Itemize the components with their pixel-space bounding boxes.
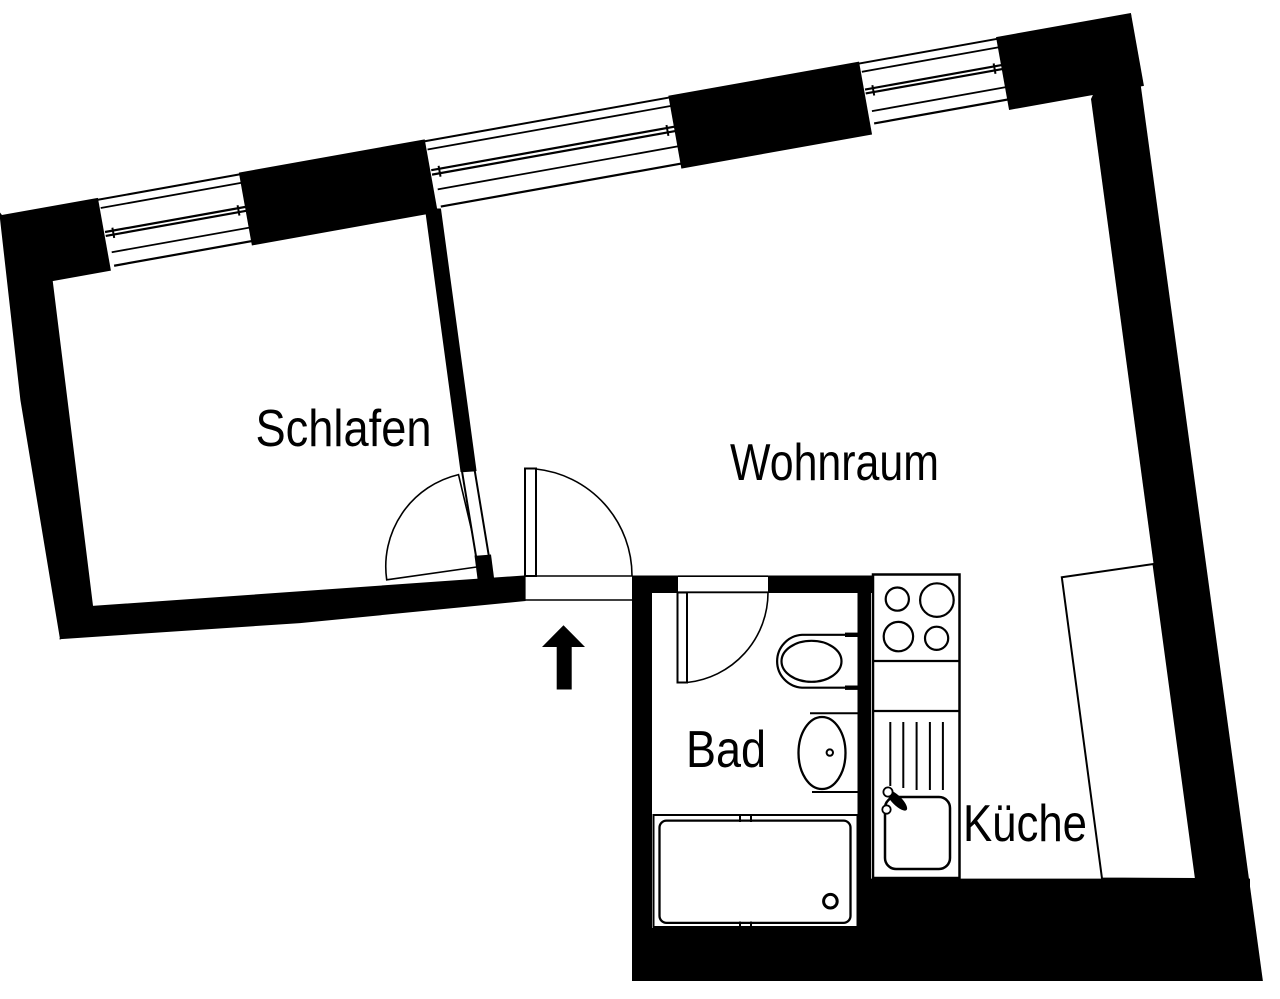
svg-text:Wohnraum: Wohnraum: [730, 434, 939, 492]
svg-text:Küche: Küche: [963, 795, 1087, 853]
svg-text:Bad: Bad: [686, 721, 766, 779]
svg-text:Schlafen: Schlafen: [256, 400, 432, 458]
